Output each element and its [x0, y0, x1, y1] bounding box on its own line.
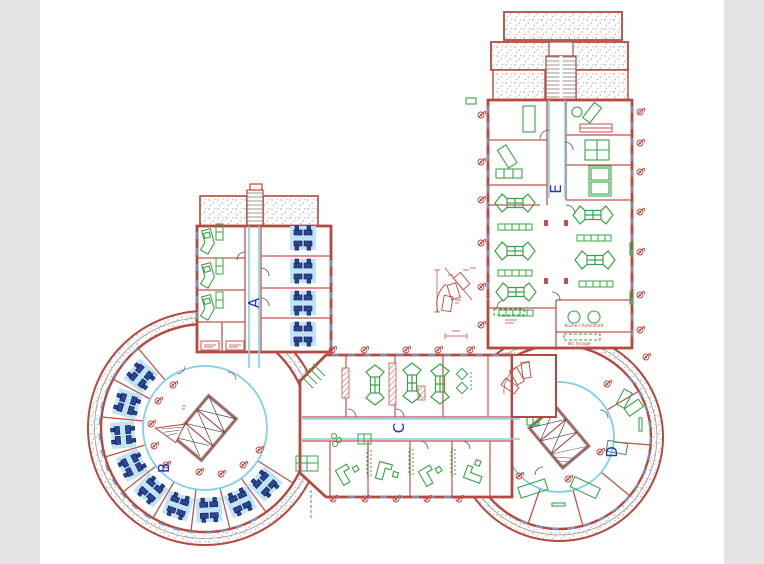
room-label-wc: WC Anlage	[568, 341, 591, 346]
section-marker	[478, 283, 486, 290]
stairwell-a	[247, 190, 263, 226]
floor-plan-page: A B C D E Küche / Aufenthalt WC Anlage	[0, 0, 764, 564]
right-margin-band	[724, 0, 764, 564]
zone-label-a: A	[245, 297, 263, 308]
section-marker	[637, 108, 645, 115]
section-marker	[478, 111, 486, 118]
section-marker	[361, 346, 369, 353]
zone-label-e: E	[547, 184, 565, 193]
floor-plan-drawing: A B C D E Küche / Aufenthalt WC Anlage	[0, 0, 764, 564]
desk-cluster	[290, 259, 316, 283]
section-marker	[637, 139, 645, 146]
section-marker	[435, 346, 443, 353]
terrace-stipple-left	[200, 196, 247, 226]
terrace-stipple-right	[263, 196, 318, 226]
left-margin-band	[0, 0, 40, 564]
desk-cluster	[290, 226, 316, 250]
section-marker	[637, 208, 645, 215]
zone-label-b: B	[155, 463, 173, 473]
terrace-stipple-top	[504, 12, 622, 40]
section-marker	[643, 353, 651, 360]
section-marker	[403, 346, 411, 353]
section-marker	[478, 158, 486, 165]
section-marker	[478, 321, 486, 328]
desk-cluster	[290, 322, 316, 346]
section-marker	[467, 346, 475, 353]
zone-label-c: C	[390, 423, 408, 433]
section-marker	[637, 168, 645, 175]
room-label-kitchen: Küche / Aufenthalt	[565, 323, 604, 328]
wing-e	[466, 12, 633, 350]
junction-room	[512, 355, 556, 417]
section-marker	[478, 239, 486, 246]
zone-label-d: D	[603, 446, 621, 458]
section-marker	[637, 248, 645, 255]
desk-cluster	[110, 421, 136, 449]
desk-cluster	[290, 291, 316, 315]
section-marker	[637, 326, 645, 333]
detail-sketch	[434, 268, 476, 339]
desk-cluster	[195, 497, 222, 523]
section-marker	[637, 291, 645, 298]
section-marker	[478, 196, 486, 203]
